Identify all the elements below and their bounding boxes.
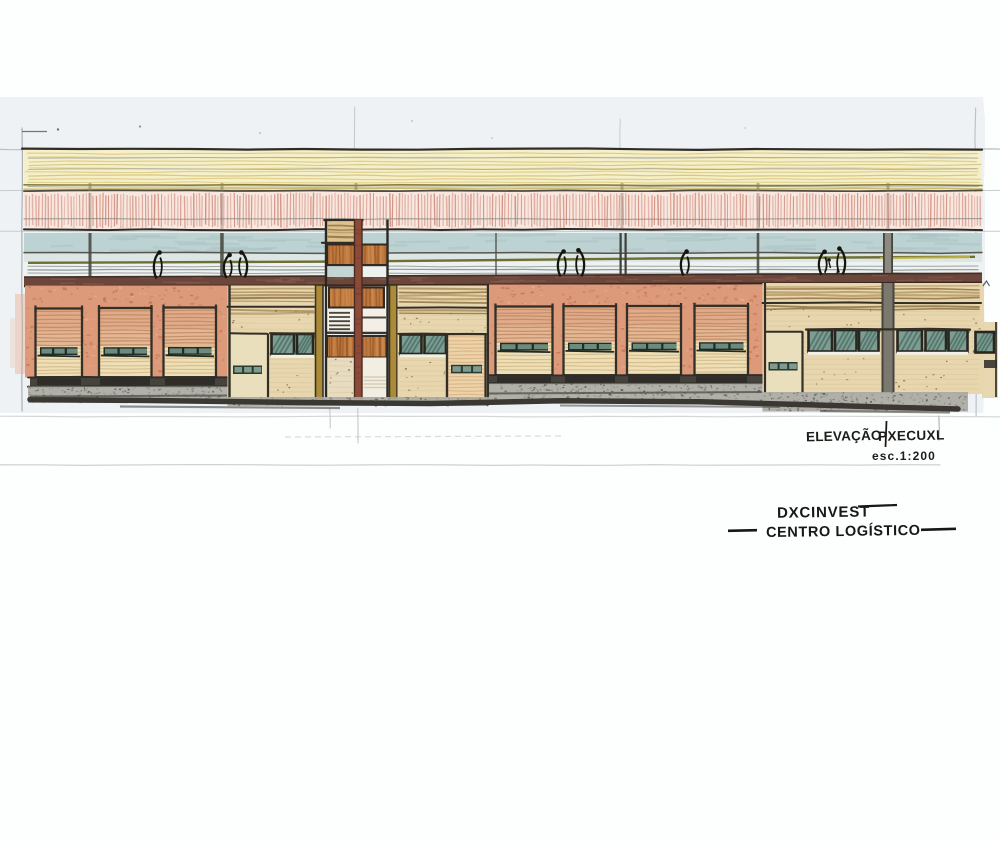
svg-text:PXECUXL: PXECUXL	[878, 427, 945, 443]
svg-text:CENTRO LOGÍSTICO: CENTRO LOGÍSTICO	[766, 522, 921, 541]
svg-text:esc.1:200: esc.1:200	[872, 449, 936, 463]
svg-text:ELEVAÇÃO: ELEVAÇÃO	[806, 428, 882, 445]
svg-text:DXCINVEST: DXCINVEST	[777, 503, 870, 521]
